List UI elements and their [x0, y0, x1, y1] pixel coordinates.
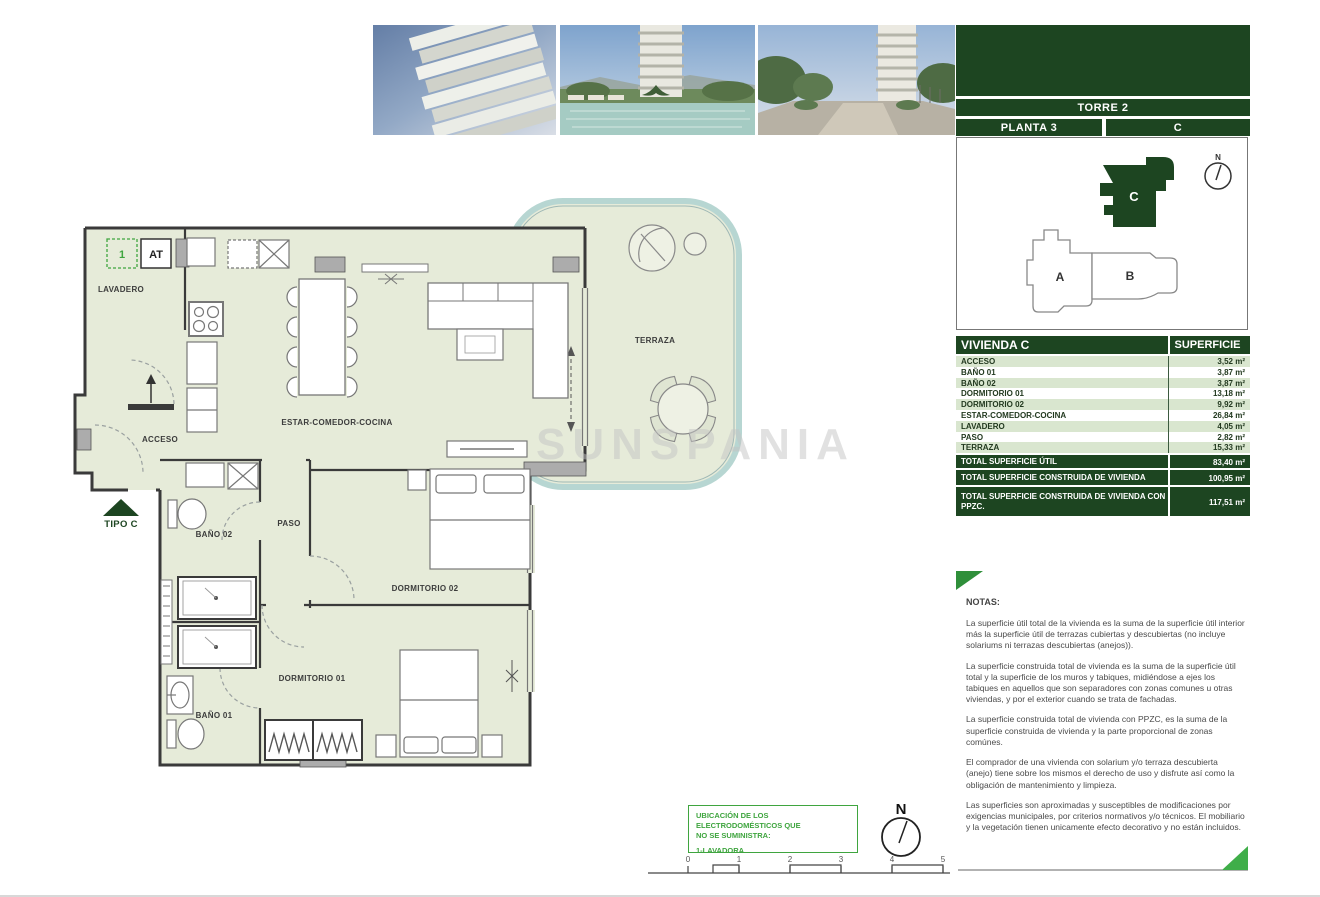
table-total-construida: TOTAL SUPERFICIE CONSTRUIDA DE VIVIENDA1…	[956, 470, 1250, 485]
notas-paragraph: La superficie construida total de vivien…	[966, 661, 1246, 706]
table-col-header: SUPERFICIE	[1168, 336, 1250, 354]
notas-paragraph: La superficie útil total de la vivienda …	[966, 618, 1246, 652]
label-bano02: BAÑO 02	[196, 530, 233, 539]
keyplan-unit-b-shape	[1092, 253, 1177, 299]
coffee-table	[457, 329, 503, 360]
label-paso: PASO	[277, 519, 300, 528]
svg-text:0: 0	[686, 855, 691, 864]
tipo-c-triangle	[103, 499, 139, 516]
keyplan-drawing: C A B N	[956, 137, 1250, 330]
notas-section: NOTAS: La superficie útil total de la vi…	[958, 597, 1246, 842]
torre-label: TORRE 2	[1078, 102, 1129, 114]
tv-console	[447, 441, 527, 457]
notas-footer-rule	[956, 843, 1250, 873]
legend-line2: NO SE SUMINISTRA:	[696, 831, 850, 841]
svg-text:3: 3	[839, 855, 844, 864]
notas-corner-triangle	[956, 570, 986, 594]
notas-paragraph: El comprador de una vivienda con solariu…	[966, 757, 1246, 791]
table-row: PASO2,82 m²	[956, 432, 1250, 443]
notas-title: NOTAS:	[966, 597, 1246, 609]
label-dorm02: DORMITORIO 02	[392, 584, 459, 593]
table-row: BAÑO 013,87 m²	[956, 367, 1250, 378]
scale-bar-line	[648, 865, 950, 873]
svg-text:1: 1	[737, 855, 742, 864]
keyplan-unit-a-label: A	[1056, 270, 1065, 284]
label-estar: ESTAR-COMEDOR-COCINA	[281, 418, 392, 427]
label-dorm01: DORMITORIO 01	[279, 674, 346, 683]
wardrobe	[265, 720, 362, 760]
photo-tower-sky-art	[373, 25, 556, 135]
table-total-ppzc: TOTAL SUPERFICIE CONSTRUIDA DE VIVIENDA …	[956, 487, 1250, 516]
label-lavadero: LAVADERO	[98, 285, 144, 294]
floorplan-sheet: TORRE 2 PLANTA 3 C C A B N VIVIENDA C SU…	[0, 0, 1320, 897]
scale-bar: 0 1 2 3 4 5	[640, 852, 960, 880]
legend-line1: UBICACIÓN DE LOS ELECTRODOMÉSTICOS QUE	[696, 811, 850, 831]
table-row: LAVADERO4,05 m²	[956, 421, 1250, 432]
label-acceso: ACCESO	[142, 435, 178, 444]
table-title: VIVIENDA C	[956, 336, 1168, 354]
photo-garden-tower-art	[758, 25, 955, 135]
unidad-label: C	[1174, 122, 1182, 134]
appliance-legend-box: UBICACIÓN DE LOS ELECTRODOMÉSTICOS QUE N…	[688, 805, 858, 853]
planta-bar: PLANTA 3	[956, 119, 1102, 136]
compass-n-label: N	[896, 801, 907, 818]
table-row: ACCESO3,52 m²	[956, 356, 1250, 367]
planta-label: PLANTA 3	[1001, 122, 1058, 134]
footer-green-triangle	[1222, 846, 1248, 870]
table-row: TERRAZA15,33 m²	[956, 442, 1250, 453]
table-row: BAÑO 023,87 m²	[956, 378, 1250, 389]
notas-paragraph: Las superficies son aproximadas y suscep…	[966, 800, 1246, 834]
label-terraza: TERRAZA	[635, 336, 675, 345]
at-box-label: AT	[149, 249, 163, 261]
keyplan-compass-n: N	[1215, 153, 1221, 162]
svg-text:5: 5	[941, 855, 946, 864]
svg-text:2: 2	[788, 855, 793, 864]
photo-pool-tower-art	[560, 25, 755, 135]
svg-text:4: 4	[890, 855, 895, 864]
notas-paragraph: La superficie construida total de vivien…	[966, 714, 1246, 748]
keyplan-compass-icon: N	[1205, 153, 1231, 189]
keyplan-unit-b-label: B	[1126, 269, 1135, 283]
photo-garden-tower	[758, 25, 955, 135]
washer-number: 1	[119, 249, 125, 261]
table-row: DORMITORIO 029,92 m²	[956, 399, 1250, 410]
label-bano01: BAÑO 01	[196, 711, 233, 720]
label-tipo-c: TIPO C	[104, 519, 137, 530]
torre-bar: TORRE 2	[956, 99, 1250, 116]
photo-pool-tower	[560, 25, 755, 135]
photo-tower-sky	[373, 25, 556, 135]
unidad-bar: C	[1106, 119, 1250, 136]
compass-icon: N	[875, 798, 930, 860]
floorplan-drawing: 1 AT	[60, 192, 750, 807]
table-row: ESTAR-COMEDOR-COCINA26,84 m²	[956, 410, 1250, 421]
header-green-block	[956, 25, 1250, 96]
table-row: DORMITORIO 0113,18 m²	[956, 388, 1250, 399]
keyplan-unit-c-label: C	[1129, 189, 1139, 204]
scale-bar-numbers: 0 1 2 3 4 5	[686, 855, 946, 864]
table-total-util: TOTAL SUPERFICIE ÚTIL83,40 m²	[956, 455, 1250, 468]
table-header-row: VIVIENDA C SUPERFICIE	[956, 336, 1250, 354]
